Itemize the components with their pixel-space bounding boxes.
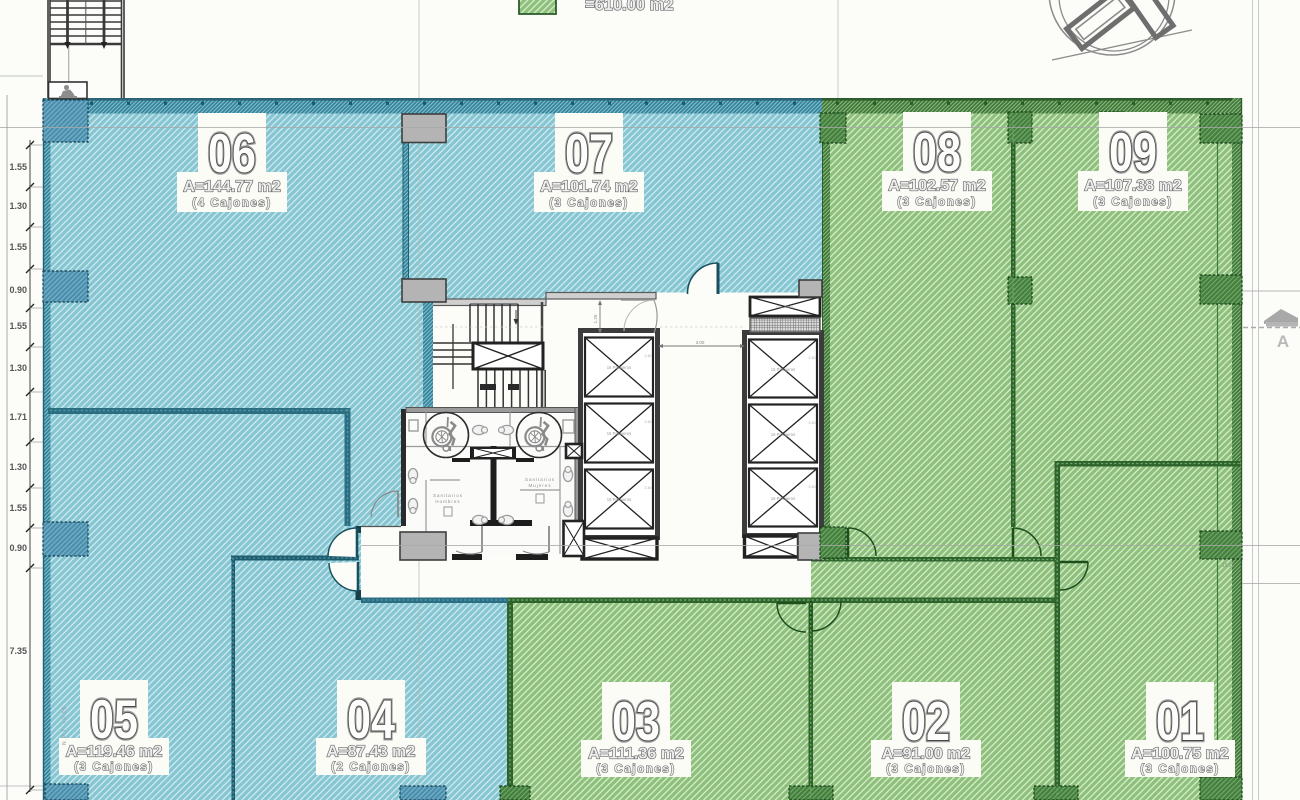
svg-text:1.30: 1.30 [9, 363, 27, 373]
svg-text:(2 Cajones): (2 Cajones) [331, 762, 411, 774]
svg-text:07: 07 [565, 122, 613, 184]
svg-text:09: 09 [1109, 121, 1157, 183]
svg-text:16 Pasajeros: 16 Pasajeros [771, 496, 795, 501]
svg-text:03: 03 [612, 690, 660, 752]
svg-text:(3 Cajones): (3 Cajones) [886, 764, 966, 776]
svg-text:A=87.43 m2: A=87.43 m2 [327, 744, 416, 761]
svg-text:A=111.36 m2: A=111.36 m2 [588, 746, 684, 763]
svg-text:1.55: 1.55 [9, 242, 27, 252]
svg-text:2.40: 2.40 [645, 354, 652, 358]
svg-text:16 Pasajeros: 16 Pasajeros [771, 367, 795, 372]
svg-text:16 Pasajeros: 16 Pasajeros [607, 431, 631, 436]
svg-text:02: 02 [902, 690, 950, 752]
svg-text:0.90: 0.90 [9, 285, 27, 295]
svg-text:Mujeres: Mujeres [528, 483, 551, 488]
svg-text:A=101.74 m2: A=101.74 m2 [540, 179, 638, 196]
svg-text:1.55: 1.55 [9, 321, 27, 331]
svg-text:(3 Cajones): (3 Cajones) [1093, 197, 1173, 209]
svg-text:1.55: 1.55 [9, 162, 27, 172]
svg-text:15.20: 15.20 [1222, 563, 1235, 569]
svg-text:(3 Cajones): (3 Cajones) [74, 762, 154, 774]
svg-text:Cto. Maq.: Cto. Maq. [776, 304, 793, 309]
svg-text:2.40: 2.40 [809, 485, 816, 489]
svg-text:1.30: 1.30 [9, 201, 27, 211]
svg-text:N.P.T. +0.15: N.P.T. +0.15 [62, 706, 68, 745]
svg-text:2.40: 2.40 [809, 421, 816, 425]
svg-text:Hombres: Hombres [435, 499, 460, 504]
svg-text:(3 Cajones): (3 Cajones) [596, 764, 676, 776]
svg-text:0.90: 0.90 [9, 543, 27, 553]
svg-text:7.35: 7.35 [9, 646, 27, 656]
svg-text:16 Pasajeros: 16 Pasajeros [771, 432, 795, 437]
svg-text:2.40: 2.40 [645, 420, 652, 424]
svg-text:A=100.75 m2: A=100.75 m2 [1131, 746, 1229, 763]
svg-text:Sanitarios: Sanitarios [433, 493, 463, 498]
svg-text:A=102.57 m2: A=102.57 m2 [888, 178, 986, 195]
svg-text:16 Pasajeros: 16 Pasajeros [607, 365, 631, 370]
svg-text:(3 Cajones): (3 Cajones) [1140, 764, 1220, 776]
svg-text:06: 06 [208, 122, 256, 184]
svg-text:3.00: 3.00 [696, 340, 705, 345]
svg-text:1.30: 1.30 [9, 462, 27, 472]
svg-text:=610.00 m2: =610.00 m2 [585, 0, 674, 14]
svg-text:08: 08 [913, 121, 961, 183]
svg-text:A=107.38 m2: A=107.38 m2 [1084, 178, 1182, 195]
svg-text:(3 Cajones): (3 Cajones) [549, 198, 629, 210]
svg-text:1.20: 1.20 [593, 314, 598, 323]
svg-text:(3 Cajones): (3 Cajones) [897, 197, 977, 209]
svg-text:A: A [1277, 332, 1289, 351]
svg-text:2.40: 2.40 [809, 356, 816, 360]
svg-text:A=119.46 m2: A=119.46 m2 [66, 744, 163, 761]
svg-text:A=144.77 m2: A=144.77 m2 [183, 179, 281, 196]
svg-text:Sanitarios: Sanitarios [525, 477, 555, 482]
svg-text:1.55: 1.55 [9, 503, 27, 513]
svg-text:01: 01 [1156, 690, 1204, 752]
svg-text:16 Pasajeros: 16 Pasajeros [607, 497, 631, 502]
svg-text:(4 Cajones): (4 Cajones) [192, 198, 272, 210]
svg-text:1.71: 1.71 [9, 412, 27, 422]
svg-text:2.40: 2.40 [645, 486, 652, 490]
svg-text:05: 05 [90, 688, 138, 750]
svg-text:A=91.00 m2: A=91.00 m2 [882, 746, 971, 763]
svg-text:04: 04 [347, 688, 395, 750]
